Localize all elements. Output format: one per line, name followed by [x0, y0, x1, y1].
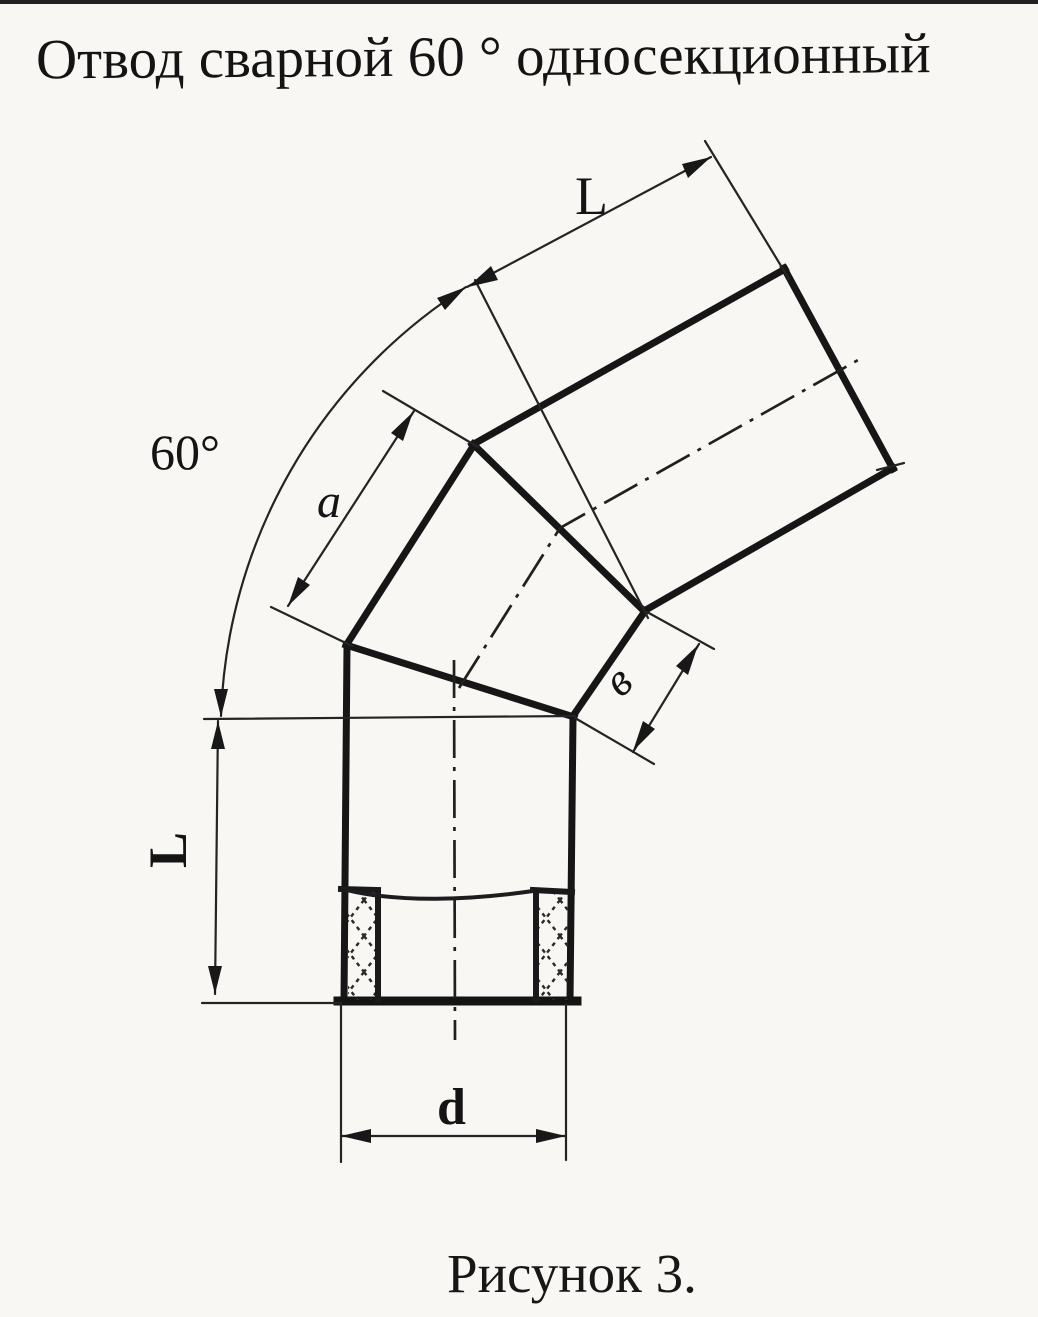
ext-line-weld-plane: [475, 280, 648, 618]
label-L-left: L: [138, 832, 198, 868]
top-pipe-end-face: [784, 268, 893, 469]
weld-seam-lower: [346, 645, 574, 717]
arrowhead: [214, 689, 228, 717]
top-pipe-lower-wall: [644, 468, 893, 611]
ext-line-b-upper: [647, 612, 714, 649]
elbow-technical-drawing: L 60° a в: [0, 0, 1038, 1317]
arrowhead: [391, 412, 413, 441]
top-pipe-upper-wall: [472, 269, 785, 445]
arrowhead: [633, 721, 655, 751]
arrowhead: [437, 287, 466, 310]
bottom-pipe-right-wall: [570, 718, 573, 1000]
dim-line-a: [288, 411, 414, 606]
label-d: d: [437, 1079, 466, 1136]
scanned-page: Отвод сварной 60 ° односекционный: [0, 0, 1038, 1317]
label-bend-angle: 60°: [150, 424, 220, 480]
bottom-pipe-segment: [338, 645, 577, 1001]
intermediate-left-wall: [347, 445, 474, 644]
arrowhead: [536, 1129, 566, 1143]
top-pipe-segment: [472, 268, 904, 611]
arrowhead: [208, 966, 222, 994]
socket-hatch-left: [348, 891, 376, 1000]
arrowhead: [676, 645, 698, 675]
dim-line-L-left: [215, 721, 218, 994]
figure-caption: Рисунок 3.: [447, 1242, 697, 1305]
bottom-pipe-left-wall: [344, 646, 347, 1000]
arrowhead: [468, 266, 498, 287]
dimension-bend-angle: 60°: [150, 287, 466, 717]
ext-line-a-lower: [271, 607, 352, 646]
arrowhead: [682, 157, 711, 178]
arrowhead: [341, 1129, 371, 1143]
label-L-top: L: [575, 166, 608, 226]
arrowhead: [288, 577, 310, 606]
arrowhead: [211, 721, 225, 749]
dimension-L-top: L: [467, 141, 789, 618]
dimension-d: d: [341, 1004, 566, 1162]
label-a: a: [317, 475, 341, 528]
socket-hatch-right: [538, 891, 568, 1000]
dimension-a: a: [271, 391, 478, 646]
ext-line-end-face: [705, 141, 789, 279]
ext-line-L-upper: [204, 716, 575, 719]
